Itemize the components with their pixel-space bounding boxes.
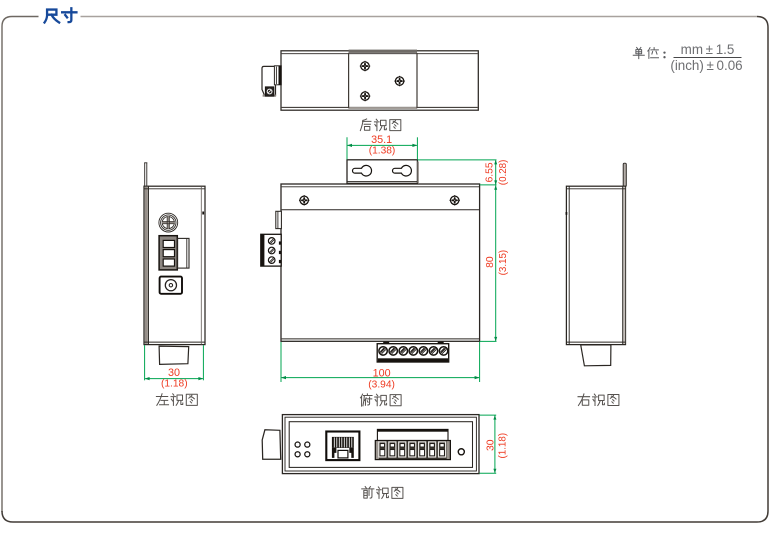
- svg-text:30: 30: [168, 367, 180, 379]
- svg-text:(inch) ± 0.06: (inch) ± 0.06: [670, 58, 742, 73]
- svg-text:30: 30: [486, 439, 497, 451]
- svg-text:80: 80: [485, 256, 496, 268]
- svg-text:(1.18): (1.18): [498, 433, 509, 459]
- svg-text:(1.38): (1.38): [369, 145, 396, 156]
- svg-text:(1.18): (1.18): [161, 379, 188, 390]
- svg-text:6.55: 6.55: [484, 162, 495, 182]
- svg-text:(3.94): (3.94): [368, 380, 395, 391]
- svg-text:(3.15): (3.15): [498, 250, 509, 276]
- svg-text:(0.28): (0.28): [498, 160, 509, 186]
- svg-text:mm ± 1.5: mm ± 1.5: [681, 42, 735, 57]
- svg-text:100: 100: [373, 367, 391, 379]
- svg-text:35.1: 35.1: [371, 134, 392, 146]
